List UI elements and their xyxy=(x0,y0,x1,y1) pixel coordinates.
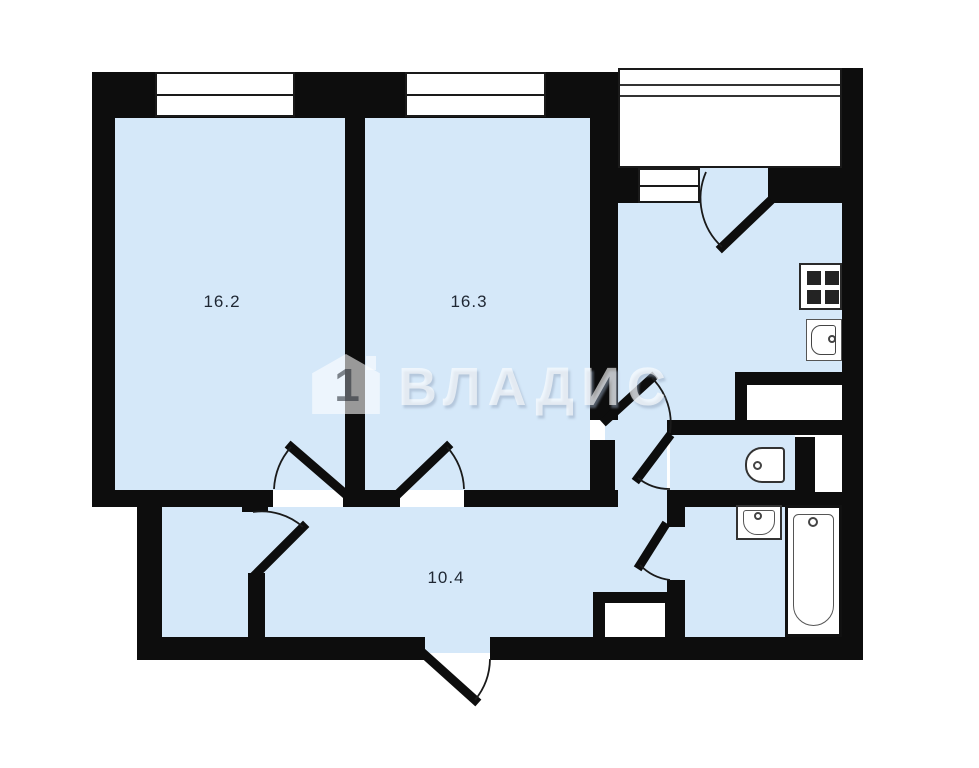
wall-kitchen-niche-top xyxy=(735,372,842,385)
glazing-line xyxy=(620,84,840,86)
entrance-duct-inner xyxy=(605,603,665,637)
room-1-area-label: 16.2 xyxy=(177,292,267,312)
wall-bottom-exterior-a xyxy=(137,637,425,660)
window-icon xyxy=(405,72,546,117)
wall-balcony-sill-right xyxy=(768,168,842,203)
wall-rooms-bottom-b xyxy=(343,490,400,507)
window-mullion xyxy=(157,94,293,96)
window-icon xyxy=(638,168,700,203)
wall-wc-shaft xyxy=(795,437,815,492)
toilet-icon xyxy=(745,447,785,483)
entrance-doorway-floor xyxy=(425,637,490,653)
wall-closet-right xyxy=(248,573,265,660)
watermark-brand: ВЛАДИС xyxy=(398,356,673,418)
watermark-logo-digit: 1 xyxy=(330,358,364,412)
wall-between-rooms xyxy=(345,72,365,492)
hallway-area-label: 10.4 xyxy=(401,568,491,588)
washbasin-icon xyxy=(736,505,782,540)
wall-wc-top xyxy=(667,420,842,435)
window-mullion xyxy=(640,185,698,187)
balcony-glazing-icon xyxy=(618,68,842,168)
room-2-area-label: 16.3 xyxy=(424,292,514,312)
vent-shaft xyxy=(815,435,842,492)
wall-left-exterior xyxy=(92,72,115,507)
window-icon xyxy=(155,72,295,117)
stove-icon xyxy=(799,263,842,310)
wall-closet-right-stub xyxy=(242,496,268,512)
kitchen-sink-icon xyxy=(806,319,842,361)
wall-balcony-sill-left xyxy=(614,168,638,203)
wall-right-exterior xyxy=(842,68,863,660)
door-arc xyxy=(475,659,490,700)
bathtub-icon xyxy=(785,505,842,637)
balcony-doorway-floor xyxy=(700,168,768,203)
door-swing-icon xyxy=(425,655,475,700)
glazing-line xyxy=(620,95,840,97)
window-mullion xyxy=(407,94,544,96)
wall-bath-left-upper xyxy=(667,507,685,527)
wall-rooms-bottom-c xyxy=(464,490,618,507)
floor-plan: 16.2 16.3 10.4 1 ВЛАДИС xyxy=(0,0,979,768)
